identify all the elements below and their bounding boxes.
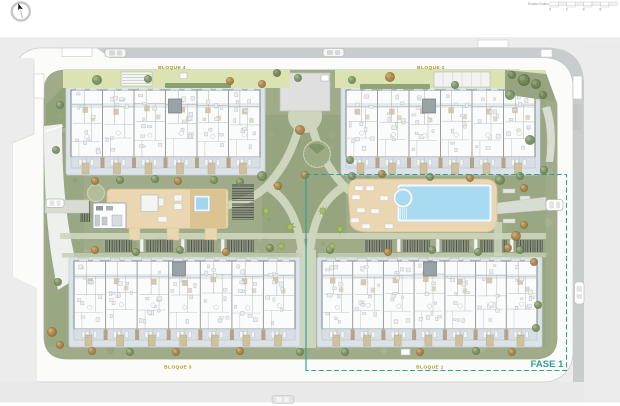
svg-text:0: 0 bbox=[549, 8, 551, 12]
svg-text:2: 2 bbox=[566, 8, 568, 12]
svg-text:BLOQUE 4: BLOQUE 4 bbox=[158, 65, 186, 71]
svg-text:BLOQUE 1: BLOQUE 1 bbox=[416, 365, 444, 371]
svg-text:BLOQUE 3: BLOQUE 3 bbox=[164, 365, 192, 371]
svg-text:BLOQUE 2: BLOQUE 2 bbox=[417, 65, 445, 71]
svg-text:Escala Gráfica: Escala Gráfica bbox=[528, 2, 549, 6]
svg-text:4: 4 bbox=[583, 8, 585, 12]
svg-text:FASE 1: FASE 1 bbox=[531, 359, 564, 370]
svg-text:6: 6 bbox=[599, 8, 601, 12]
